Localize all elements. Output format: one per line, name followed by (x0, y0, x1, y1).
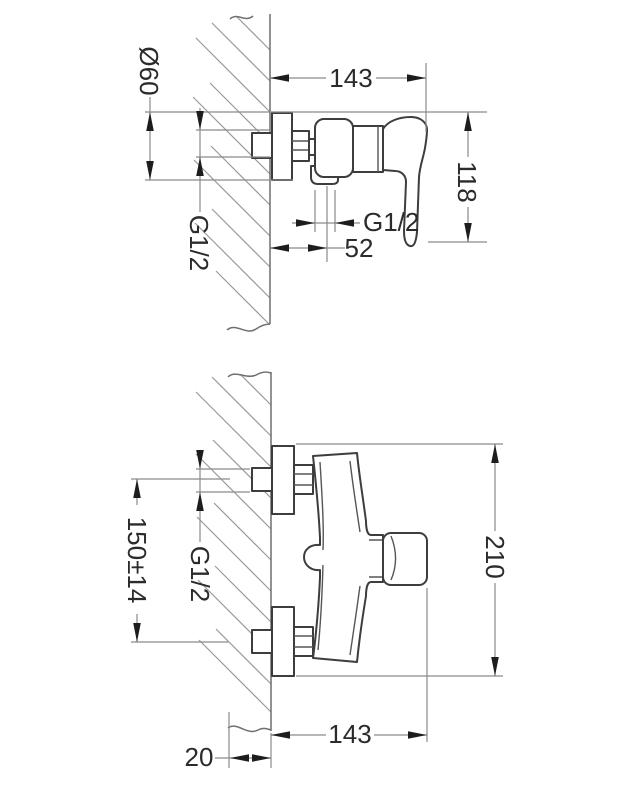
dimension-g12-supply: G1/2 (185, 450, 250, 602)
hex-nut-top (294, 465, 313, 494)
installation-drawing: 143 Ø60 G1/2 118 (0, 0, 643, 800)
wall-flange-top (272, 446, 294, 514)
dim-label-flange-diameter: Ø60 (134, 46, 164, 95)
supply-stub (252, 133, 273, 158)
drawing-sheet: 143 Ø60 G1/2 118 (0, 0, 643, 800)
wall-flange (272, 113, 292, 180)
dim-label-118-height: 118 (452, 161, 482, 202)
dim-label-52-offset: 52 (345, 233, 374, 263)
dim-label-150-spacing: 150±14 (122, 517, 152, 604)
wall-break-top (230, 16, 253, 19)
hex-nut-bottom (294, 627, 313, 656)
hex-nut (292, 131, 309, 161)
dimension-20-recess: 20 (185, 712, 271, 772)
mixer-plan-profile (252, 446, 427, 676)
wall-break-bottom (228, 726, 271, 731)
dim-label-143-top: 143 (329, 63, 372, 93)
plan-view: 150±14 G1/2 210 143 (122, 372, 510, 772)
wall-flange-bottom (272, 607, 294, 676)
wall-break-top (228, 372, 271, 377)
dim-label-143-bottom: 143 (328, 719, 371, 749)
mixer-body (315, 119, 353, 177)
wall-hatching (193, 16, 270, 325)
dimension-52-offset: 52 (270, 186, 373, 263)
dimension-g12-outlet: G1/2 (292, 190, 419, 237)
wall-section (227, 14, 270, 331)
dimension-60-flange: Ø60 (134, 46, 487, 180)
dimension-118-height: 118 (428, 112, 487, 242)
dim-label-inlet-thread: G1/2 (184, 215, 214, 271)
dim-label-supply-thread: G1/2 (185, 546, 215, 602)
supply-stub-bottom (252, 630, 273, 653)
dim-label-210-length: 210 (480, 535, 510, 578)
dim-label-20-recess: 20 (185, 742, 214, 772)
side-view: 143 Ø60 G1/2 118 (134, 14, 487, 331)
handle-knob (383, 533, 427, 585)
mixer-body (304, 453, 383, 662)
supply-stub-top (252, 468, 273, 491)
wall-break-bottom (227, 324, 270, 331)
wall-hatching (196, 374, 271, 712)
